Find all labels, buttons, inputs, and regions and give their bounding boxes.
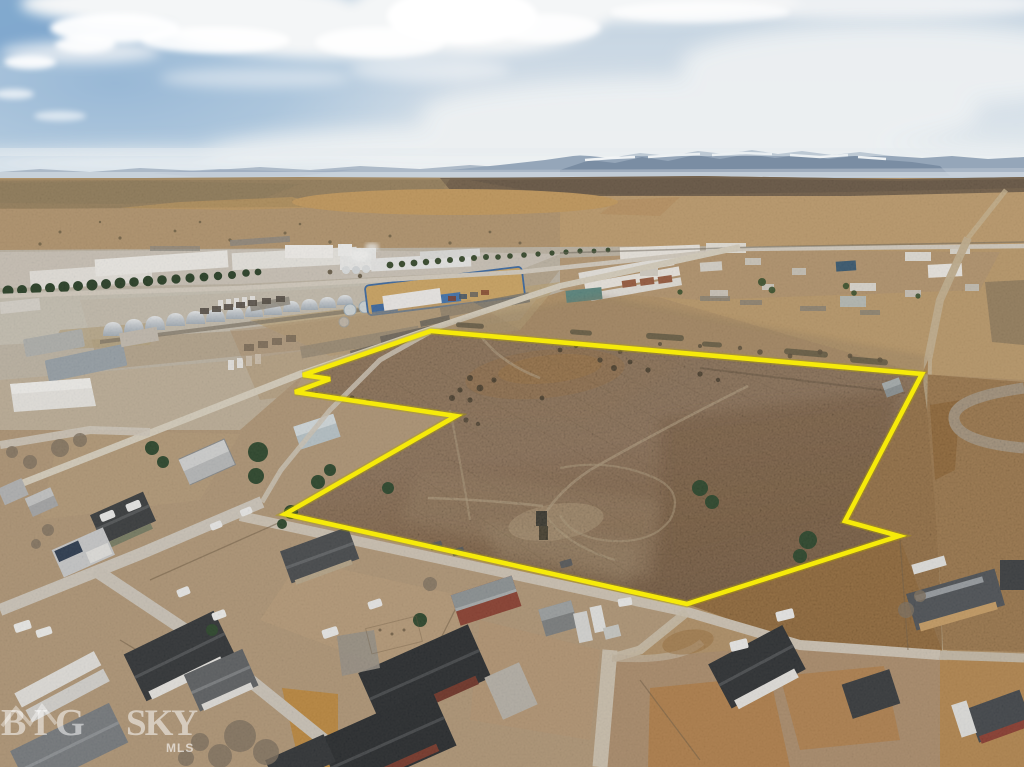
svg-text:SKY: SKY bbox=[126, 703, 198, 744]
svg-text:MLS: MLS bbox=[166, 741, 194, 755]
